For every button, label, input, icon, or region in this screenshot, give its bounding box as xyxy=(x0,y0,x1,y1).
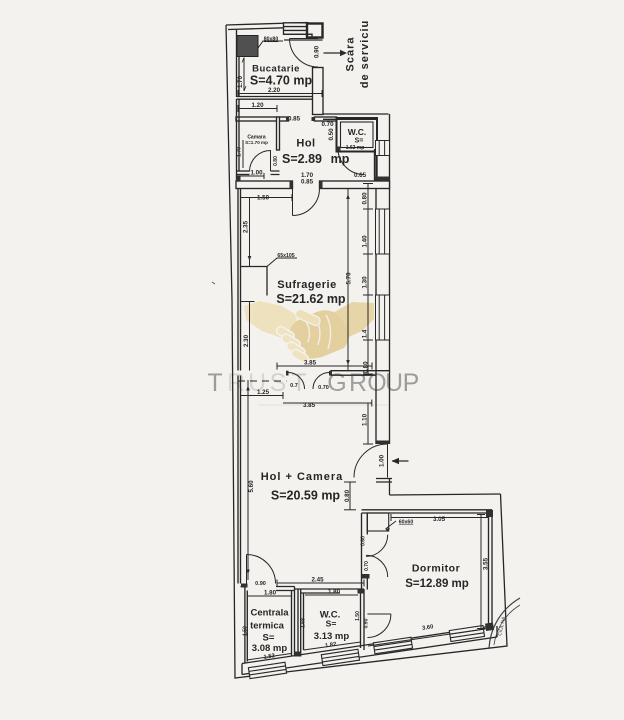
svg-text:3.05: 3.05 xyxy=(433,516,446,523)
svg-text:S=: S= xyxy=(263,633,275,644)
svg-text:R: R xyxy=(227,369,245,397)
svg-text:Hol: Hol xyxy=(296,138,315,150)
svg-text:0.70: 0.70 xyxy=(318,385,329,391)
svg-text:0.90: 0.90 xyxy=(255,581,266,587)
svg-text:80x80: 80x80 xyxy=(264,37,279,43)
svg-text:1.70: 1.70 xyxy=(237,147,243,157)
svg-text:1.30: 1.30 xyxy=(362,276,369,289)
svg-text:S=21.62 mp: S=21.62 mp xyxy=(276,292,346,306)
svg-text:1.00: 1.00 xyxy=(379,454,386,467)
svg-text:0.80: 0.80 xyxy=(363,361,370,374)
svg-text:1.50: 1.50 xyxy=(355,611,361,621)
svg-text:S=4.70 mp: S=4.70 mp xyxy=(250,74,313,88)
svg-text:U: U xyxy=(385,369,403,397)
svg-text:0.90: 0.90 xyxy=(364,618,370,628)
svg-text:S=12.89 mp: S=12.89 mp xyxy=(405,578,469,590)
svg-text:1.68: 1.68 xyxy=(301,618,307,628)
svg-text:0.80: 0.80 xyxy=(273,156,279,166)
svg-text:W.C.: W.C. xyxy=(348,127,366,137)
svg-text:0.80: 0.80 xyxy=(362,192,369,205)
svg-text:2.20: 2.20 xyxy=(268,87,281,94)
svg-text:0.60: 0.60 xyxy=(361,536,367,546)
svg-text:1.40: 1.40 xyxy=(362,235,369,248)
svg-text:Dormitor: Dormitor xyxy=(412,563,460,575)
svg-text:65x105: 65x105 xyxy=(277,253,294,259)
svg-text:0.70: 0.70 xyxy=(364,561,370,571)
svg-text:0.85: 0.85 xyxy=(301,178,314,185)
svg-text:3.55: 3.55 xyxy=(483,557,490,570)
svg-text:termica: termica xyxy=(250,621,285,632)
svg-text:S=1.70 mp: S=1.70 mp xyxy=(245,140,268,145)
svg-text:1.20: 1.20 xyxy=(251,102,264,109)
svg-text:60x60: 60x60 xyxy=(399,520,414,526)
svg-text:Hol + Camera: Hol + Camera xyxy=(261,471,344,483)
svg-text:1.00: 1.00 xyxy=(250,170,263,177)
svg-text:1.50: 1.50 xyxy=(243,626,249,636)
svg-text:0.80: 0.80 xyxy=(344,489,351,502)
svg-text:S=2.89: S=2.89 xyxy=(282,152,322,166)
svg-text:3.85: 3.85 xyxy=(303,402,316,409)
svg-text:T: T xyxy=(207,369,222,397)
svg-text:0.85: 0.85 xyxy=(288,116,301,123)
svg-text:3.13 mp: 3.13 mp xyxy=(314,631,350,642)
svg-text:1.25: 1.25 xyxy=(257,389,270,396)
svg-text:Sufragerie: Sufragerie xyxy=(277,279,336,291)
svg-text:O: O xyxy=(367,369,386,397)
svg-text:1.62 mp: 1.62 mp xyxy=(346,145,365,151)
svg-text:S: S xyxy=(270,369,287,397)
svg-text:0.50: 0.50 xyxy=(328,128,335,141)
svg-text:mp: mp xyxy=(331,152,350,166)
svg-text:5.70: 5.70 xyxy=(346,272,353,285)
svg-text:5.60: 5.60 xyxy=(248,480,255,493)
svg-text:P: P xyxy=(403,369,420,397)
svg-text:1.4: 1.4 xyxy=(362,329,369,338)
svg-text:0.7: 0.7 xyxy=(290,383,298,389)
svg-text:3.85: 3.85 xyxy=(304,360,317,367)
svg-text:S=: S= xyxy=(326,619,337,629)
svg-text:0.70: 0.70 xyxy=(321,121,334,128)
svg-text:S=: S= xyxy=(355,138,364,145)
svg-text:0.90: 0.90 xyxy=(314,45,321,58)
svg-text:Centrala: Centrala xyxy=(250,608,289,619)
svg-text:S=20.59 mp: S=20.59 mp xyxy=(271,489,341,503)
svg-text:Scara: Scara xyxy=(345,37,357,72)
svg-text:2.45: 2.45 xyxy=(311,577,324,584)
svg-text:3.08 mp: 3.08 mp xyxy=(252,643,288,654)
svg-text:1.70: 1.70 xyxy=(237,75,244,88)
svg-text:de serviciu: de serviciu xyxy=(359,20,371,88)
svg-text:0.65: 0.65 xyxy=(354,172,367,179)
svg-text:2.30: 2.30 xyxy=(243,334,250,347)
svg-text:1.80: 1.80 xyxy=(328,589,341,596)
svg-text:2.35: 2.35 xyxy=(243,220,250,233)
svg-text:1.80: 1.80 xyxy=(264,590,277,597)
svg-text:1.50: 1.50 xyxy=(257,195,270,202)
svg-text:1.10: 1.10 xyxy=(362,413,369,426)
